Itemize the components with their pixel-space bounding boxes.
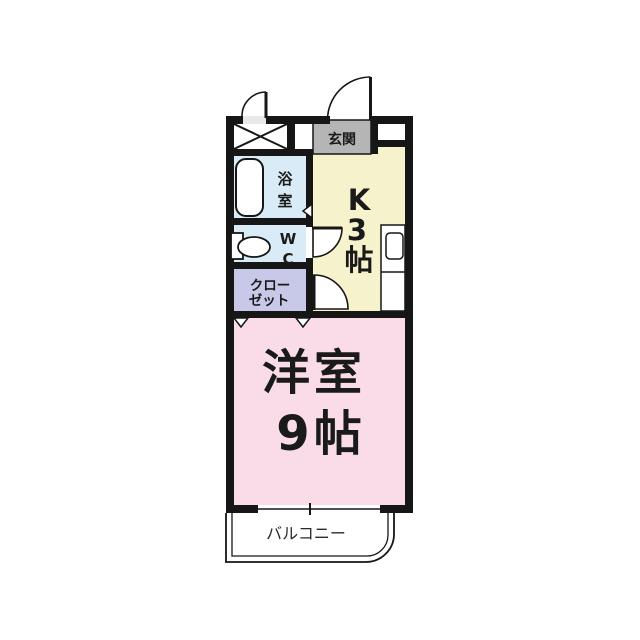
western-room-label-line1: 洋室 [262,345,366,401]
genkan-label: 玄関 [328,131,356,148]
kitchen-sink [386,233,403,259]
wall-wc-closet [226,262,313,269]
kitchen-label-char1: K [348,183,372,217]
floorplan-svg: 玄関 浴 室 W C クロー ゼット K 3 帖 洋室 9帖 バルコニー [0,0,640,640]
wc-label-char2: C [282,250,293,268]
closet-label-line2: ゼット [249,292,290,309]
wall-bottom-right [380,505,413,513]
wall-genkan-stub [371,120,378,154]
entry-pocket [378,124,405,140]
floorplan-image: 玄関 浴 室 W C クロー ゼット K 3 帖 洋室 9帖 バルコニー [0,0,640,640]
western-room-label-line2: 9帖 [276,406,365,462]
bathtub [236,159,263,216]
wall-pocket-bar [378,140,405,147]
balcony-label: バルコニー [266,524,346,543]
wc-label-char1: W [280,230,297,248]
toilet-bowl [238,237,270,257]
wall-top-left-b [266,116,330,124]
wall-bath-top [226,149,313,156]
bathroom-label-char2: 室 [277,192,292,210]
bathroom-label-char1: 浴 [277,170,293,188]
wall-bath-wc [226,218,313,225]
washroom-door-gap [306,227,313,258]
kitchen-label-char3: 帖 [344,243,373,277]
kitchen-label-char2: 3 [347,213,367,247]
wall-bottom-left [226,505,258,513]
closet-label-line1: クロー [250,278,291,294]
wall-room-top [226,311,413,318]
pipe-space [234,124,287,149]
storage-door-arc [242,92,266,116]
storage-door-sill [243,116,266,124]
entrance-door-arc [328,77,371,120]
